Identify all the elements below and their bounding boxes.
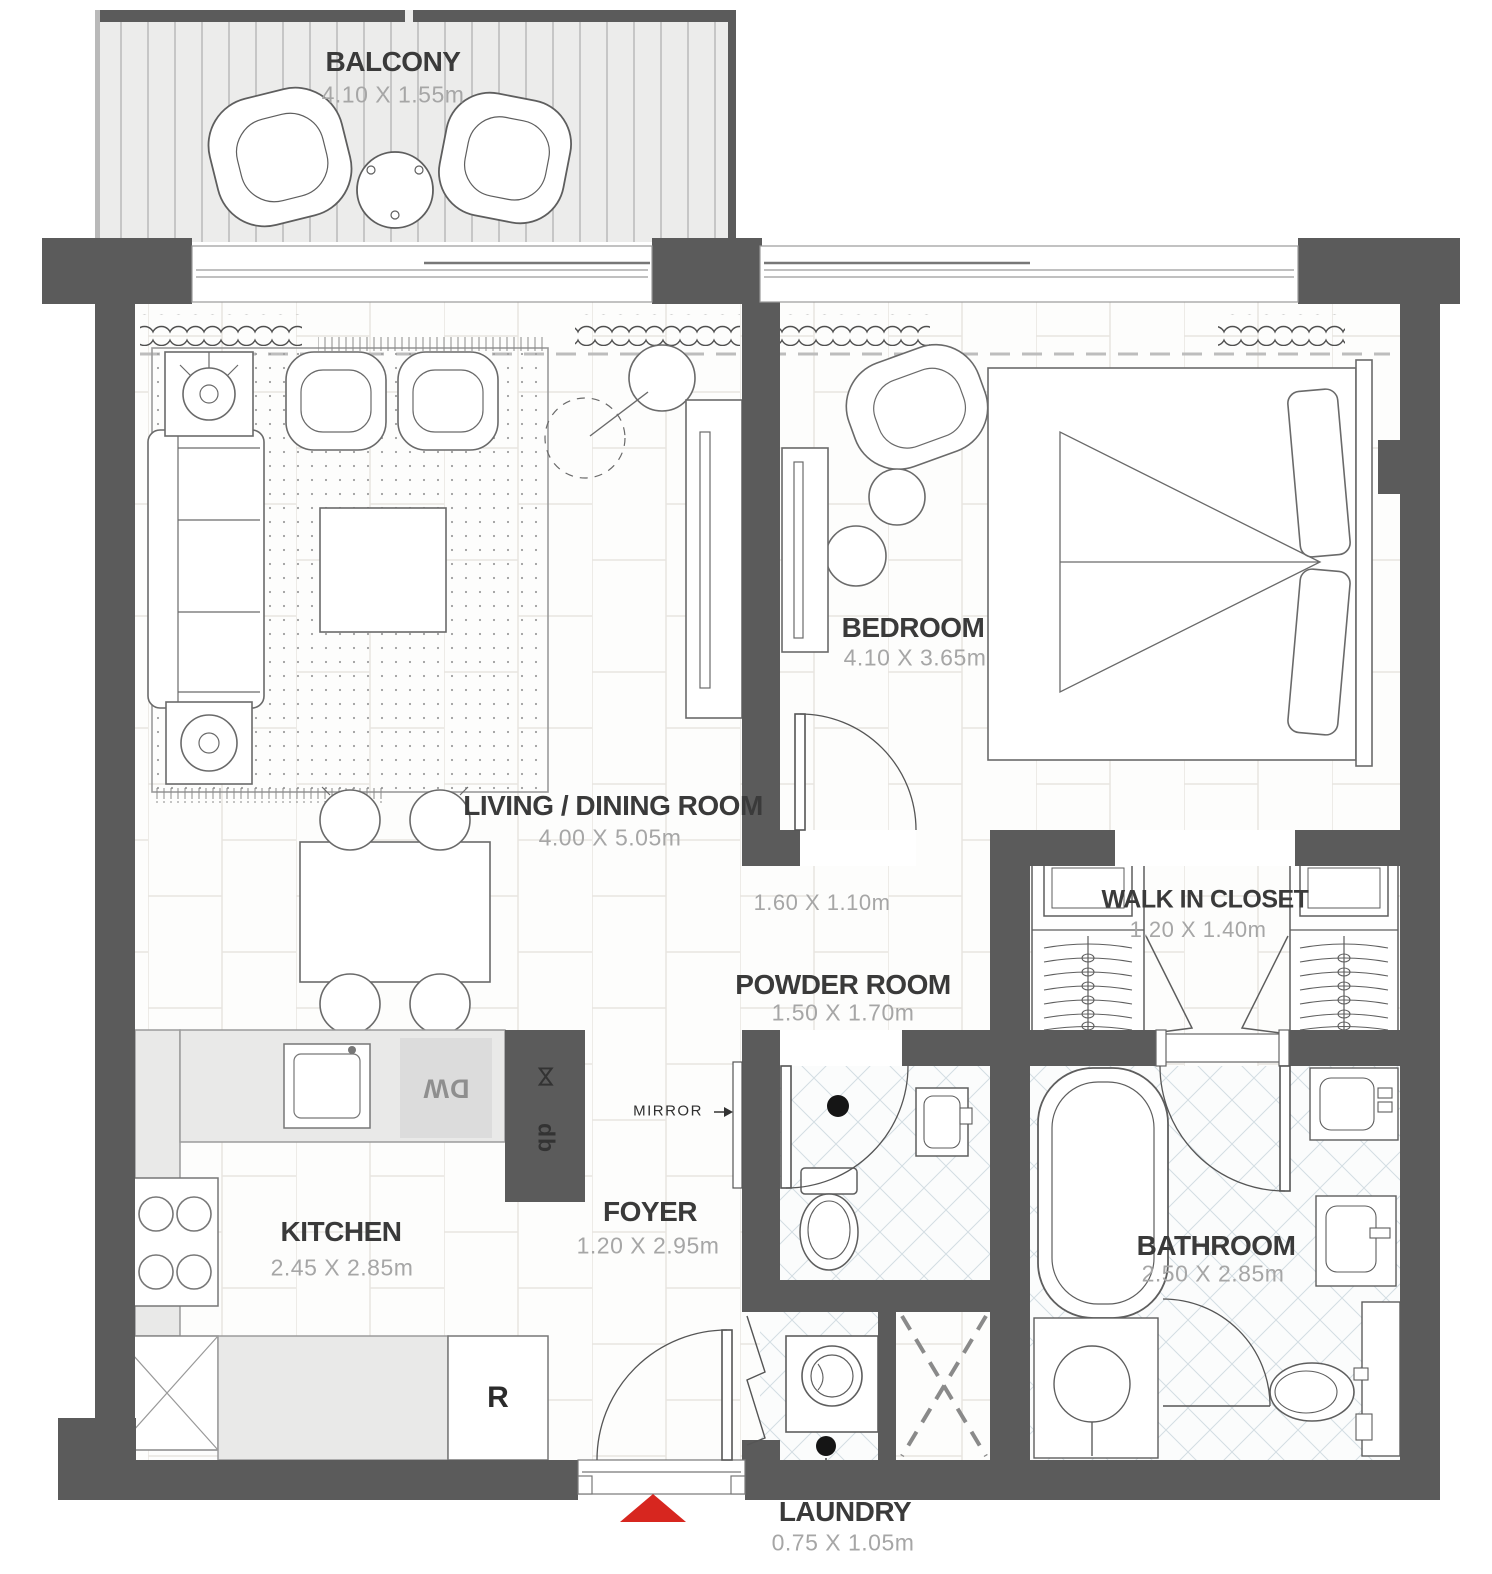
entrance-sill — [578, 1460, 745, 1494]
foyer-dims: 1.20 X 2.95m — [577, 1235, 720, 1258]
dresser — [782, 448, 828, 652]
rug-fringe-top — [318, 336, 548, 351]
mirror-label: MIRROR — [633, 1104, 703, 1119]
kitchen-sink — [284, 1044, 370, 1128]
bedroom-label: BEDROOM — [842, 614, 985, 642]
laundry-label: LAUNDRY — [779, 1498, 911, 1526]
dining-chair — [410, 974, 470, 1034]
laundry-drain — [816, 1436, 836, 1456]
tv — [700, 432, 710, 688]
hall-dims: 1.60 X 1.10m — [754, 892, 891, 914]
floor-plan-drawing — [0, 0, 1492, 1574]
tall-unit-lower-label: db — [535, 1123, 558, 1153]
powder-dims: 1.50 X 1.70m — [772, 1002, 915, 1025]
tall-unit-upper-label: ⋈ — [535, 1065, 558, 1089]
refrigerator-label: R — [487, 1383, 509, 1413]
bedroom-door-leaf — [795, 714, 805, 830]
floor-lamp — [629, 345, 695, 411]
living-label: LIVING / DINING ROOM — [463, 792, 763, 820]
entry-arrow — [620, 1494, 686, 1522]
pouf — [869, 469, 925, 525]
mirror — [733, 1062, 742, 1188]
cooktop — [128, 1178, 218, 1306]
sofa — [148, 430, 264, 708]
laundry-dims: 0.75 X 1.05m — [772, 1532, 915, 1555]
closet-dims: 1.20 X 1.40m — [1130, 919, 1267, 941]
living-dims: 4.00 X 5.05m — [539, 827, 682, 850]
powder-door-leaf — [781, 1066, 791, 1188]
balcony-label: BALCONY — [326, 48, 461, 76]
tv-console — [686, 400, 742, 718]
dishwasher-label: DW — [423, 1075, 470, 1102]
balcony-dims: 4.10 X 1.55m — [322, 84, 465, 107]
dining-chair — [320, 790, 380, 850]
shower-head — [1054, 1346, 1130, 1422]
bathroom-dims: 2.50 X 2.85m — [1142, 1263, 1285, 1286]
dining-chair — [410, 790, 470, 850]
dining-table — [300, 842, 490, 982]
kitchen-label: KITCHEN — [281, 1218, 402, 1246]
headboard — [1356, 360, 1372, 766]
bedroom-dims: 4.10 X 3.65m — [844, 647, 987, 670]
entry-door-leaf — [722, 1330, 732, 1460]
pouf — [826, 526, 886, 586]
bathroom-door-leaf — [1280, 1066, 1290, 1191]
kitchen-tall-unit — [505, 1030, 585, 1202]
foyer-label: FOYER — [603, 1198, 697, 1226]
closet-label: WALK IN CLOSET — [1102, 888, 1309, 913]
powder-label: POWDER ROOM — [735, 971, 950, 999]
coffee-table — [320, 508, 446, 632]
toilet-tank — [801, 1168, 857, 1194]
kitchen-dims: 2.45 X 2.85m — [271, 1257, 414, 1280]
dining-chair — [320, 974, 380, 1034]
floor-drain — [827, 1095, 849, 1117]
bathroom-label: BATHROOM — [1137, 1232, 1296, 1260]
floor-plan: BALCONY 4.10 X 1.55m LIVING / DINING ROO… — [0, 0, 1492, 1574]
